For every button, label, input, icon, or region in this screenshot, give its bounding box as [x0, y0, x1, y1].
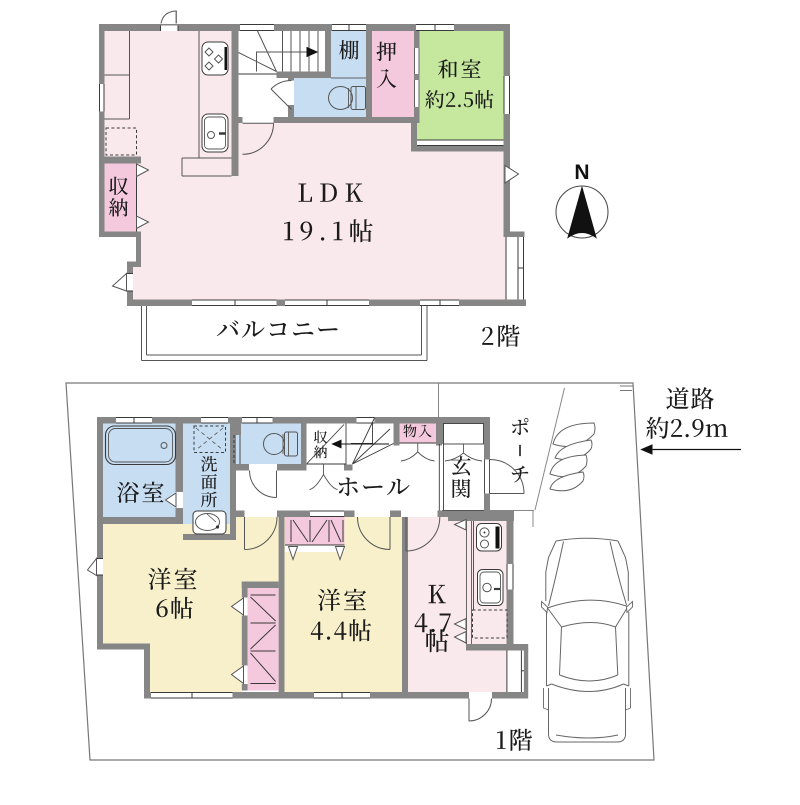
svg-text:N: N [574, 161, 589, 184]
